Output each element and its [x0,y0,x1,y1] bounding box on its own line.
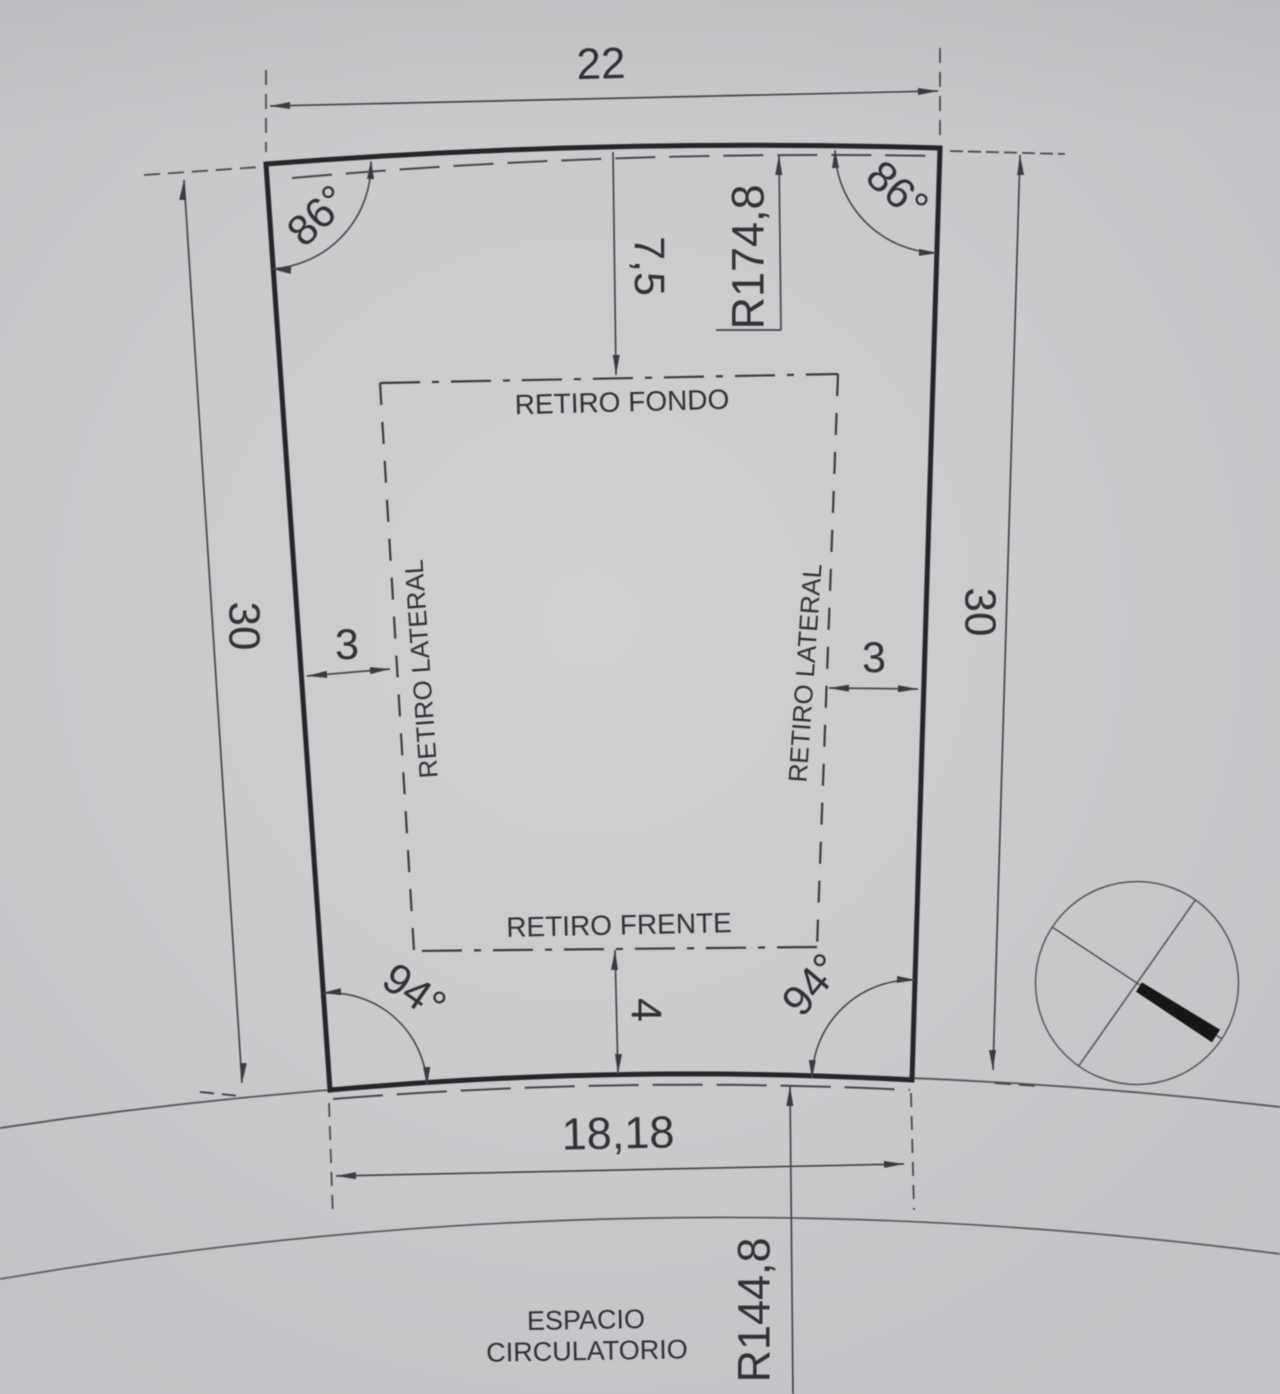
svg-text:3: 3 [862,634,887,682]
svg-text:RETIRO FONDO: RETIRO FONDO [514,384,729,421]
svg-text:CIRCULATORIO: CIRCULATORIO [486,1334,688,1368]
svg-text:7,5: 7,5 [625,236,673,296]
svg-text:R174,8: R174,8 [723,184,774,329]
svg-text:R144,8: R144,8 [729,1237,780,1382]
svg-text:3: 3 [335,621,360,669]
svg-text:18,18: 18,18 [561,1106,675,1159]
svg-text:30: 30 [956,588,1005,637]
svg-text:30: 30 [220,602,269,651]
svg-text:ESPACIO: ESPACIO [527,1304,646,1336]
svg-text:RETIRO FRENTE: RETIRO FRENTE [506,907,732,943]
svg-text:22: 22 [576,39,626,89]
svg-text:4: 4 [622,998,670,1022]
